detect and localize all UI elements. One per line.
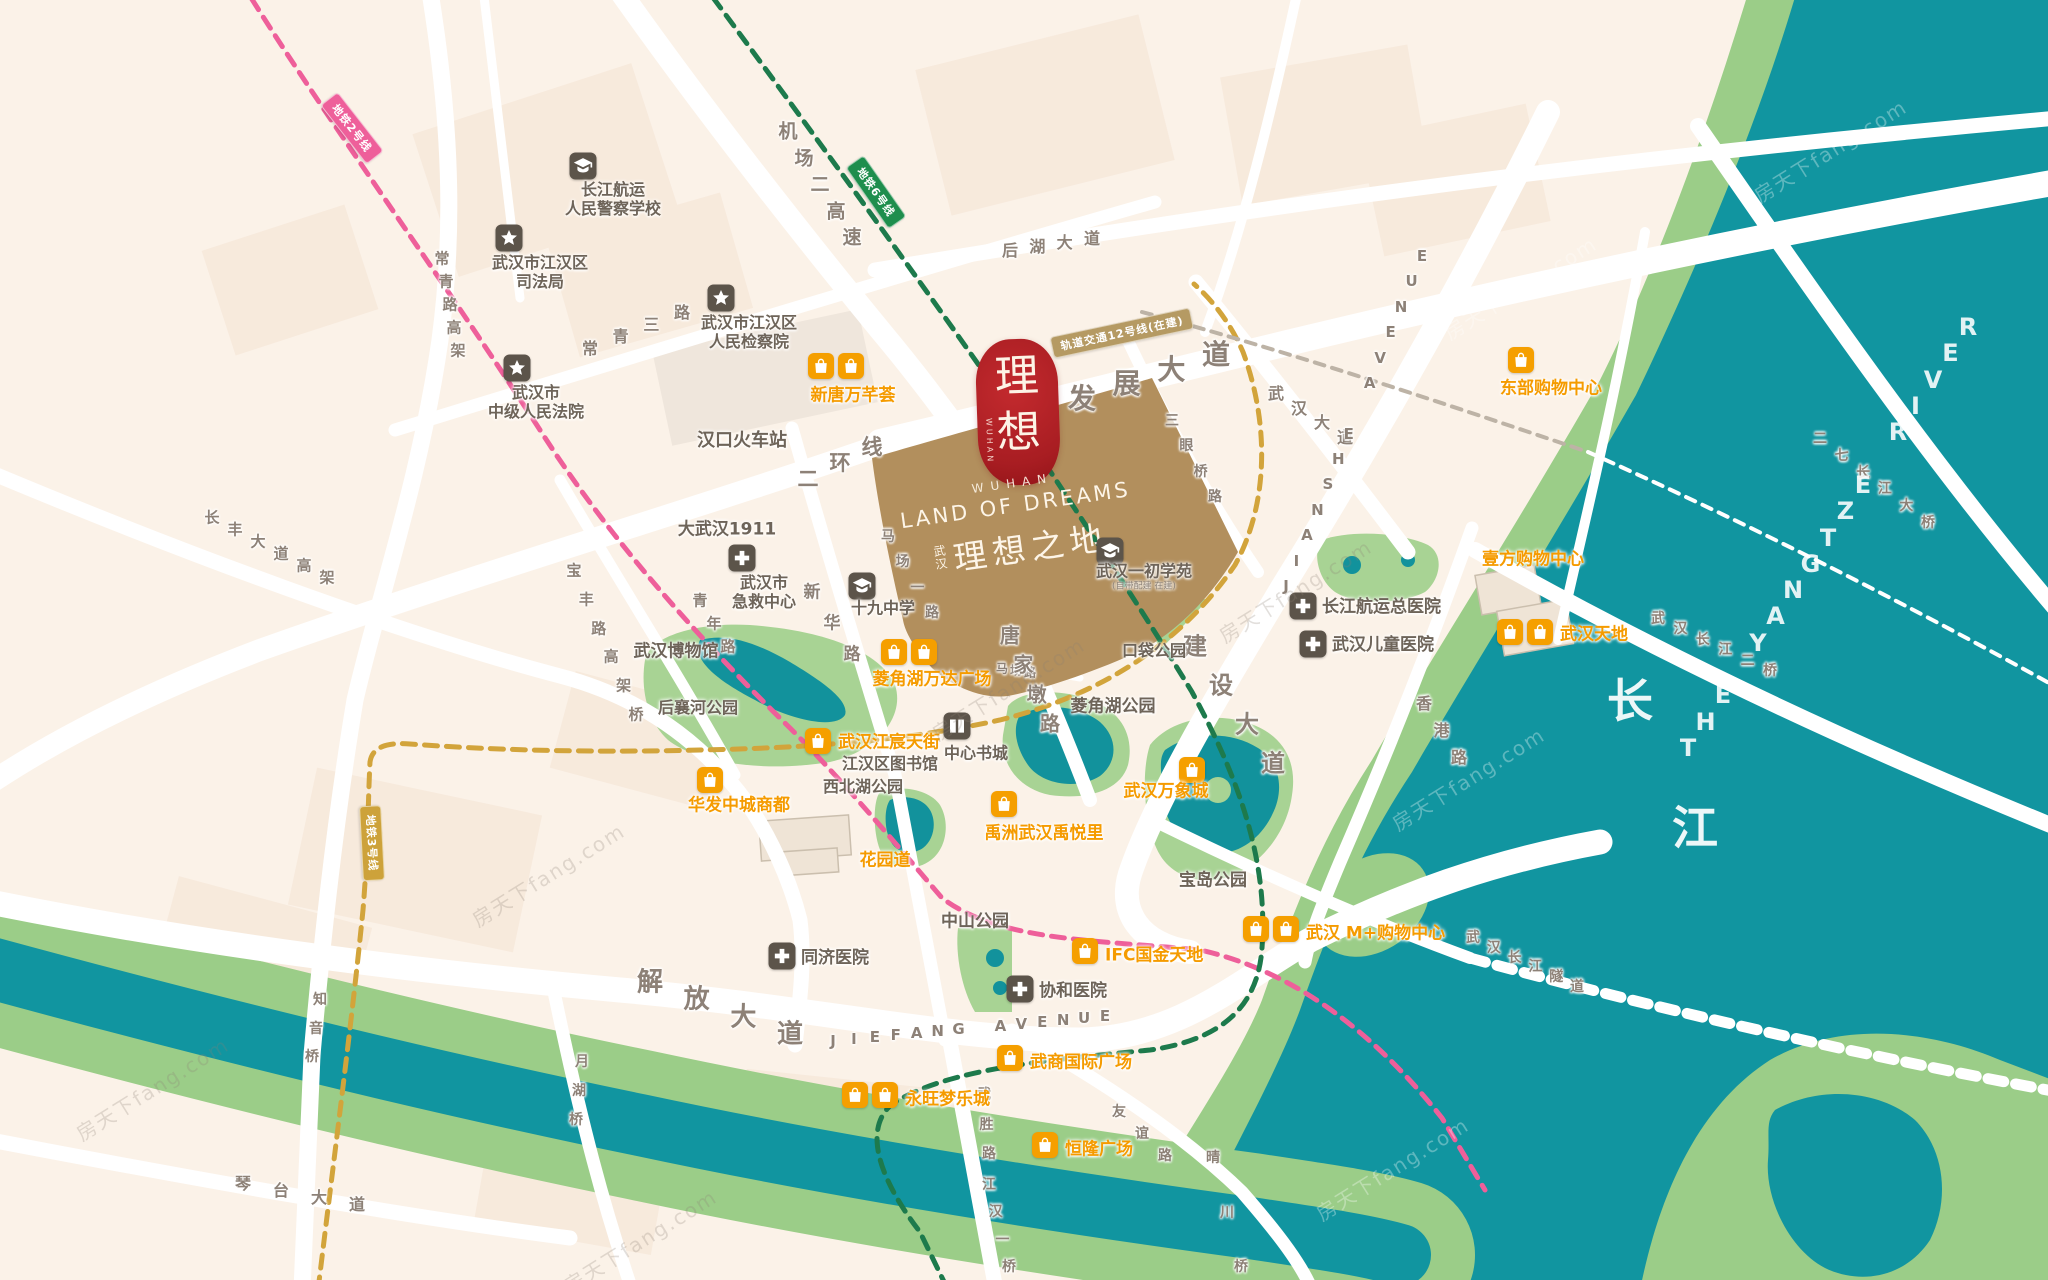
road-label-char: 香 xyxy=(1416,690,1432,714)
poi-book-icon xyxy=(944,713,971,740)
road-label-char: 汉 xyxy=(1487,937,1501,957)
road-label-char: E xyxy=(1100,1007,1110,1025)
shopping-bag-icon xyxy=(697,767,723,793)
watermark: 房天下fang.com xyxy=(1213,531,1377,649)
road-label-char: G xyxy=(952,1020,964,1038)
poi-label: 中心书城 xyxy=(944,745,1008,764)
road-label-char: 道 xyxy=(1570,976,1584,996)
watermark: 房天下fang.com xyxy=(1748,91,1912,209)
mall-icon-group xyxy=(697,767,723,793)
mall-label: 武汉江宸天街 xyxy=(838,728,940,753)
road-label-char: 二 xyxy=(798,463,819,493)
road-label-char: 知 xyxy=(313,989,327,1009)
road-label-char: 晴 xyxy=(1206,1147,1220,1167)
road-label-char: 道 xyxy=(1084,225,1100,249)
road-label-char: 场 xyxy=(896,551,910,571)
mall-label: 永旺梦乐城 xyxy=(905,1085,990,1110)
poi-school-icon xyxy=(849,573,876,600)
road-label-char: 架 xyxy=(319,567,334,588)
road-label-char: 大 xyxy=(1314,409,1330,433)
watermark: 房天下fang.com xyxy=(558,1181,722,1280)
road-label-char: 桥 xyxy=(305,1046,319,1066)
road-label-char: 胜 xyxy=(980,1114,994,1134)
road-label-char xyxy=(977,1019,982,1037)
road-label-char: 长 xyxy=(1696,629,1710,649)
road-label-char: 江 xyxy=(1878,478,1892,498)
road-label-char: 路 xyxy=(1451,744,1467,768)
shopping-bag-icon xyxy=(842,1082,868,1108)
seal-char-top: 理 xyxy=(975,354,1058,401)
shopping-bag-icon xyxy=(808,353,834,379)
road-label-char: 丰 xyxy=(579,588,594,609)
poi-label: 菱角湖公园 xyxy=(1071,692,1156,717)
road-label-char: T xyxy=(1680,734,1696,762)
poi-label: 同济医院 xyxy=(801,948,869,968)
road-label-char: 宝 xyxy=(566,560,581,581)
poi-cross-icon xyxy=(1300,631,1327,658)
shopping-bag-icon xyxy=(838,353,864,379)
mall-label: 恒隆广场 xyxy=(1065,1135,1133,1160)
road-label-char: 桥 xyxy=(1921,512,1935,532)
poi-label: 武汉市江汉区司法局 xyxy=(492,254,588,292)
mall-label: 新唐万芊荟 xyxy=(811,381,896,406)
road-label-char: 年 xyxy=(706,613,721,634)
road-label-char: R xyxy=(1889,418,1907,446)
road-label-char: 大 xyxy=(250,531,265,552)
road-label-char: 武 xyxy=(1651,608,1665,628)
road-label-char: 路 xyxy=(674,299,690,323)
road-label-char: 二 xyxy=(1813,428,1827,448)
road-label-char: 湖 xyxy=(1029,233,1045,257)
road-label-char: I xyxy=(1294,552,1300,570)
road-label-char: 发 xyxy=(1068,377,1096,417)
watermark: 房天下fang.com xyxy=(70,1029,234,1147)
poi-label: 江汉区图书馆 xyxy=(842,750,938,774)
mall-icon-group xyxy=(842,1082,898,1108)
poi-label: 江 xyxy=(1672,792,1718,858)
road-label-char: 大 xyxy=(1899,495,1913,515)
mall-label: 武汉天地 xyxy=(1560,620,1628,645)
road-label-char: 展 xyxy=(1113,362,1141,402)
road-label-char: 友 xyxy=(1112,1101,1126,1121)
road-label-char: 高 xyxy=(446,317,461,338)
mall-icon-group xyxy=(1497,619,1553,645)
road-label-char: 二 xyxy=(810,170,829,197)
road-label-char: U xyxy=(1078,1009,1090,1027)
road-label-char: 音 xyxy=(309,1018,323,1038)
poi-cross-icon xyxy=(1007,976,1034,1003)
road-label-char: N xyxy=(1395,298,1408,316)
shopping-bag-icon xyxy=(881,639,907,665)
road-label-char: 设 xyxy=(1209,666,1233,701)
road-label-char: V xyxy=(1374,349,1386,367)
road-label-char: 道 xyxy=(349,1191,365,1215)
road-label-char: 江 xyxy=(1718,639,1732,659)
shopping-bag-icon xyxy=(1527,619,1553,645)
road-label-char: V xyxy=(1015,1015,1027,1033)
road-label-char: E xyxy=(870,1028,880,1046)
road-label-char: 新 xyxy=(804,578,821,603)
poi-label: 西北湖公园 xyxy=(823,773,903,797)
road-label-char: A xyxy=(1364,374,1376,392)
road-label-char: 桥 xyxy=(1763,660,1777,680)
road-label-char: 唐 xyxy=(1000,620,1020,649)
road-label-char: S xyxy=(1322,475,1333,493)
road-label-char: 大 xyxy=(1157,348,1185,388)
road-label-char: 大 xyxy=(1057,229,1073,253)
road-label-char: N xyxy=(1311,501,1324,519)
road-label-char: 一 xyxy=(995,1229,1009,1249)
road-label-char: 青 xyxy=(613,323,629,347)
poi-cross-icon xyxy=(769,943,796,970)
mall-icon-group xyxy=(1072,938,1098,964)
road-label-char: 道 xyxy=(777,1014,803,1051)
road-label-char: 路 xyxy=(1158,1145,1172,1165)
road-label-char: A xyxy=(1766,602,1785,630)
road-label-char: 桥 xyxy=(628,704,643,725)
road-label-char: J xyxy=(1283,577,1289,595)
road-label-char: T xyxy=(1820,524,1836,552)
road-label-char: 川 xyxy=(1220,1202,1234,1222)
poi-star-icon xyxy=(504,355,531,382)
watermark: 房天下fang.com xyxy=(1310,1109,1474,1227)
road-label-char: 华 xyxy=(824,609,841,634)
mall-label: 武汉 M+购物中心 xyxy=(1306,919,1445,944)
poi-label: 长 xyxy=(1607,665,1653,731)
road-label-char: Y xyxy=(1749,629,1766,657)
road-label-char: 道 xyxy=(273,543,288,564)
road-label-char: 路 xyxy=(925,602,939,622)
mall-label: 武汉万象城 xyxy=(1124,777,1209,802)
road-label-char: 架 xyxy=(616,675,631,696)
shopping-bag-icon xyxy=(1243,916,1269,942)
road-label-char: 高 xyxy=(296,555,311,576)
road-label-char: 机 xyxy=(778,117,797,144)
road-label-char: 桥 xyxy=(569,1109,583,1129)
poi-label: 武汉市江汉区人民检察院 xyxy=(701,314,797,352)
road-label-char: 解 xyxy=(637,962,663,999)
mall-icon-group xyxy=(1508,347,1534,373)
shopping-bag-icon xyxy=(997,1045,1023,1071)
road-label-char: 长 xyxy=(1508,947,1522,967)
road-label-char: J xyxy=(830,1032,836,1050)
road-label-char: 汉 xyxy=(1291,395,1307,419)
road-label-char: 青 xyxy=(438,271,453,292)
mall-icon-group xyxy=(997,1045,1023,1071)
poi-label: 长江航运人民警察学校 xyxy=(565,181,661,219)
road-label-char: 桥 xyxy=(1002,1256,1016,1276)
watermark: 房天下fang.com xyxy=(1438,228,1602,346)
road-label-char: 场 xyxy=(794,143,813,170)
road-label-char: E xyxy=(1344,425,1354,443)
road-label-char: 路 xyxy=(442,294,457,315)
road-label-char: 眼 xyxy=(1179,435,1193,455)
road-label-char: 汉 xyxy=(989,1201,1003,1221)
road-label-char: 一 xyxy=(910,577,924,597)
road-label-char: V xyxy=(1924,366,1943,394)
road-label-char: 琴 xyxy=(235,1170,251,1194)
poi-cross-icon xyxy=(729,545,756,572)
road-label-char xyxy=(1357,399,1362,417)
road-label-char: 建 xyxy=(1183,627,1207,662)
poi-label: 武汉市急救中心 xyxy=(732,574,796,612)
road-label-char: 家 xyxy=(1013,649,1033,678)
road-label-char: 道 xyxy=(1202,333,1230,373)
poi-label: 武汉博物馆 xyxy=(634,637,719,662)
road-label-char: 路 xyxy=(1040,708,1060,737)
poi-label: 宝岛公园 xyxy=(1179,866,1247,891)
poi-label: 大武汉1911 xyxy=(678,515,776,540)
road-label-char: N xyxy=(1057,1011,1070,1029)
poi-star-icon xyxy=(496,225,523,252)
mall-icon-group xyxy=(808,353,864,379)
road-label-char: 马 xyxy=(996,660,1008,677)
road-label-char: E xyxy=(1855,471,1871,499)
metro-line-badge: 地铁6号线 xyxy=(846,155,907,229)
road-label-char: 七 xyxy=(1835,445,1849,465)
road-label-char: 月 xyxy=(575,1051,589,1071)
labels-layer: 理 想 WUHAN WUHAN LAND OF DREAMS 武汉 理想之地 机… xyxy=(0,0,2048,1280)
road-label-char: 道 xyxy=(1261,744,1285,779)
road-label-char: 隧 xyxy=(1549,966,1563,986)
road-label-char: 高 xyxy=(604,646,619,667)
mall-icon-group xyxy=(881,639,937,665)
road-label-char: 谊 xyxy=(1135,1123,1149,1143)
road-label-char: 线 xyxy=(862,431,883,461)
road-label-char: 路 xyxy=(982,1143,996,1163)
road-label-char: 三 xyxy=(1165,410,1179,430)
road-label-char: E xyxy=(1385,323,1395,341)
road-label-char: 马 xyxy=(881,526,895,546)
road-label-char: 桥 xyxy=(1234,1256,1248,1276)
mall-label: 东部购物中心 xyxy=(1500,374,1602,399)
road-label-char: 路 xyxy=(720,636,735,657)
project-logo-seal: 理 想 WUHAN xyxy=(974,338,1061,487)
road-label-char: E xyxy=(1715,681,1731,709)
road-label-char: G xyxy=(1801,550,1821,578)
road-label-char: H xyxy=(1332,450,1345,468)
road-label-char xyxy=(1876,445,1884,473)
poi-star-icon xyxy=(708,285,735,312)
metro-line-badge: 地铁2号线 xyxy=(320,92,383,164)
road-label-char: A xyxy=(995,1017,1007,1035)
road-label-char: E xyxy=(1037,1013,1047,1031)
road-label-char: 大 xyxy=(311,1184,327,1208)
road-label-char: 武 xyxy=(1268,380,1284,404)
shopping-bag-icon xyxy=(1508,347,1534,373)
watermark: 房天下fang.com xyxy=(1386,719,1550,837)
road-label-char: 武 xyxy=(1466,927,1480,947)
watermark: 房天下fang.com xyxy=(466,815,630,933)
road-label-char: 环 xyxy=(830,447,851,477)
road-label-char: Z xyxy=(1837,497,1854,525)
shopping-bag-icon xyxy=(1273,916,1299,942)
road-label-char: 青 xyxy=(692,590,707,611)
road-label-char: 放 xyxy=(684,979,710,1016)
road-label-char: 港 xyxy=(1433,717,1449,741)
poi-label: 中山公园 xyxy=(941,907,1009,932)
mall-label: 禹洲武汉禹悦里 xyxy=(985,819,1104,844)
poi-school-icon xyxy=(570,153,597,180)
road-label-char: 常 xyxy=(582,335,598,359)
poi-label: 汉口火车站 xyxy=(697,426,787,452)
poi-label: 后襄河公园 xyxy=(658,694,738,718)
road-label-char: 架 xyxy=(450,340,465,361)
road-label-char: 高 xyxy=(826,196,845,223)
road-label-char: 路 xyxy=(844,640,861,665)
shopping-bag-icon xyxy=(1497,619,1523,645)
road-label-char: E xyxy=(1417,247,1427,265)
mall-label: IFC国金天地 xyxy=(1105,941,1203,966)
road-label-char: 路 xyxy=(1208,486,1222,506)
road-label-char: 速 xyxy=(842,223,861,250)
road-label-char: I xyxy=(851,1030,857,1048)
road-label-char: U xyxy=(1405,272,1417,290)
poi-label: 口袋公园 xyxy=(1122,637,1186,661)
poi-label: 协和医院 xyxy=(1039,981,1107,1001)
metro-line-badge: 地铁3号线 xyxy=(359,805,385,881)
mall-icon-group xyxy=(805,728,831,754)
road-label-char: 长 xyxy=(204,507,219,528)
road-label-char: N xyxy=(931,1022,944,1040)
shopping-bag-icon xyxy=(1072,938,1098,964)
road-label-char: E xyxy=(1942,339,1958,367)
road-label-char: A xyxy=(911,1024,923,1042)
poi-label: 长江航运总医院 xyxy=(1322,597,1441,617)
road-label-char: A xyxy=(1301,526,1313,544)
poi-label: 十九中学 xyxy=(851,600,915,619)
road-label-char: 台 xyxy=(273,1177,289,1201)
mall-icon-group xyxy=(991,791,1017,817)
shopping-bag-icon xyxy=(805,728,831,754)
mall-icon-group xyxy=(1032,1132,1058,1158)
road-label-char: H xyxy=(1695,708,1715,736)
mall-label: 壹方购物中心 xyxy=(1482,545,1584,570)
road-label-char: 大 xyxy=(1235,705,1259,740)
road-label-char xyxy=(1736,655,1744,683)
road-label-char: 汉 xyxy=(1673,618,1687,638)
shopping-bag-icon xyxy=(911,639,937,665)
poi-cross-icon xyxy=(1290,593,1317,620)
map-canvas: 理 想 WUHAN WUHAN LAND OF DREAMS 武汉 理想之地 机… xyxy=(0,0,2048,1280)
road-label-char: 三 xyxy=(643,311,659,335)
project-title-cn-prefix: 武汉 xyxy=(933,544,949,572)
mall-label: 花园道 xyxy=(860,846,911,871)
shopping-bag-icon xyxy=(872,1082,898,1108)
road-label-char: 后 xyxy=(1002,237,1018,261)
road-label-char: 桥 xyxy=(1194,461,1208,481)
road-label-char: 大 xyxy=(730,996,756,1033)
road-label-char: 江 xyxy=(982,1174,996,1194)
shopping-bag-icon xyxy=(991,791,1017,817)
poi-label: 武汉一初学苑(自带配建 在建) xyxy=(1096,562,1192,591)
road-label-char: F xyxy=(891,1026,901,1044)
road-label-char: 墩 xyxy=(1027,678,1047,707)
poi-label: 武汉儿童医院 xyxy=(1332,635,1434,655)
poi-label: 武汉市中级人民法院 xyxy=(488,384,584,422)
shopping-bag-icon xyxy=(1032,1132,1058,1158)
road-label-char: 常 xyxy=(434,248,449,269)
mall-icon-group xyxy=(1243,916,1299,942)
road-label-char: 路 xyxy=(591,617,606,638)
mall-label: 武商国际广场 xyxy=(1030,1048,1132,1073)
road-label-char: 湖 xyxy=(572,1080,586,1100)
road-label-char: I xyxy=(1911,392,1920,420)
road-label-char: R xyxy=(1959,313,1977,341)
road-label-char: 江 xyxy=(1528,956,1542,976)
mall-label: 菱角湖万达广场 xyxy=(873,665,992,690)
road-label-char: N xyxy=(1783,576,1803,604)
seal-side-text: WUHAN xyxy=(984,418,995,465)
mall-label: 华发中城商都 xyxy=(688,791,790,816)
road-label-char: 丰 xyxy=(227,519,242,540)
